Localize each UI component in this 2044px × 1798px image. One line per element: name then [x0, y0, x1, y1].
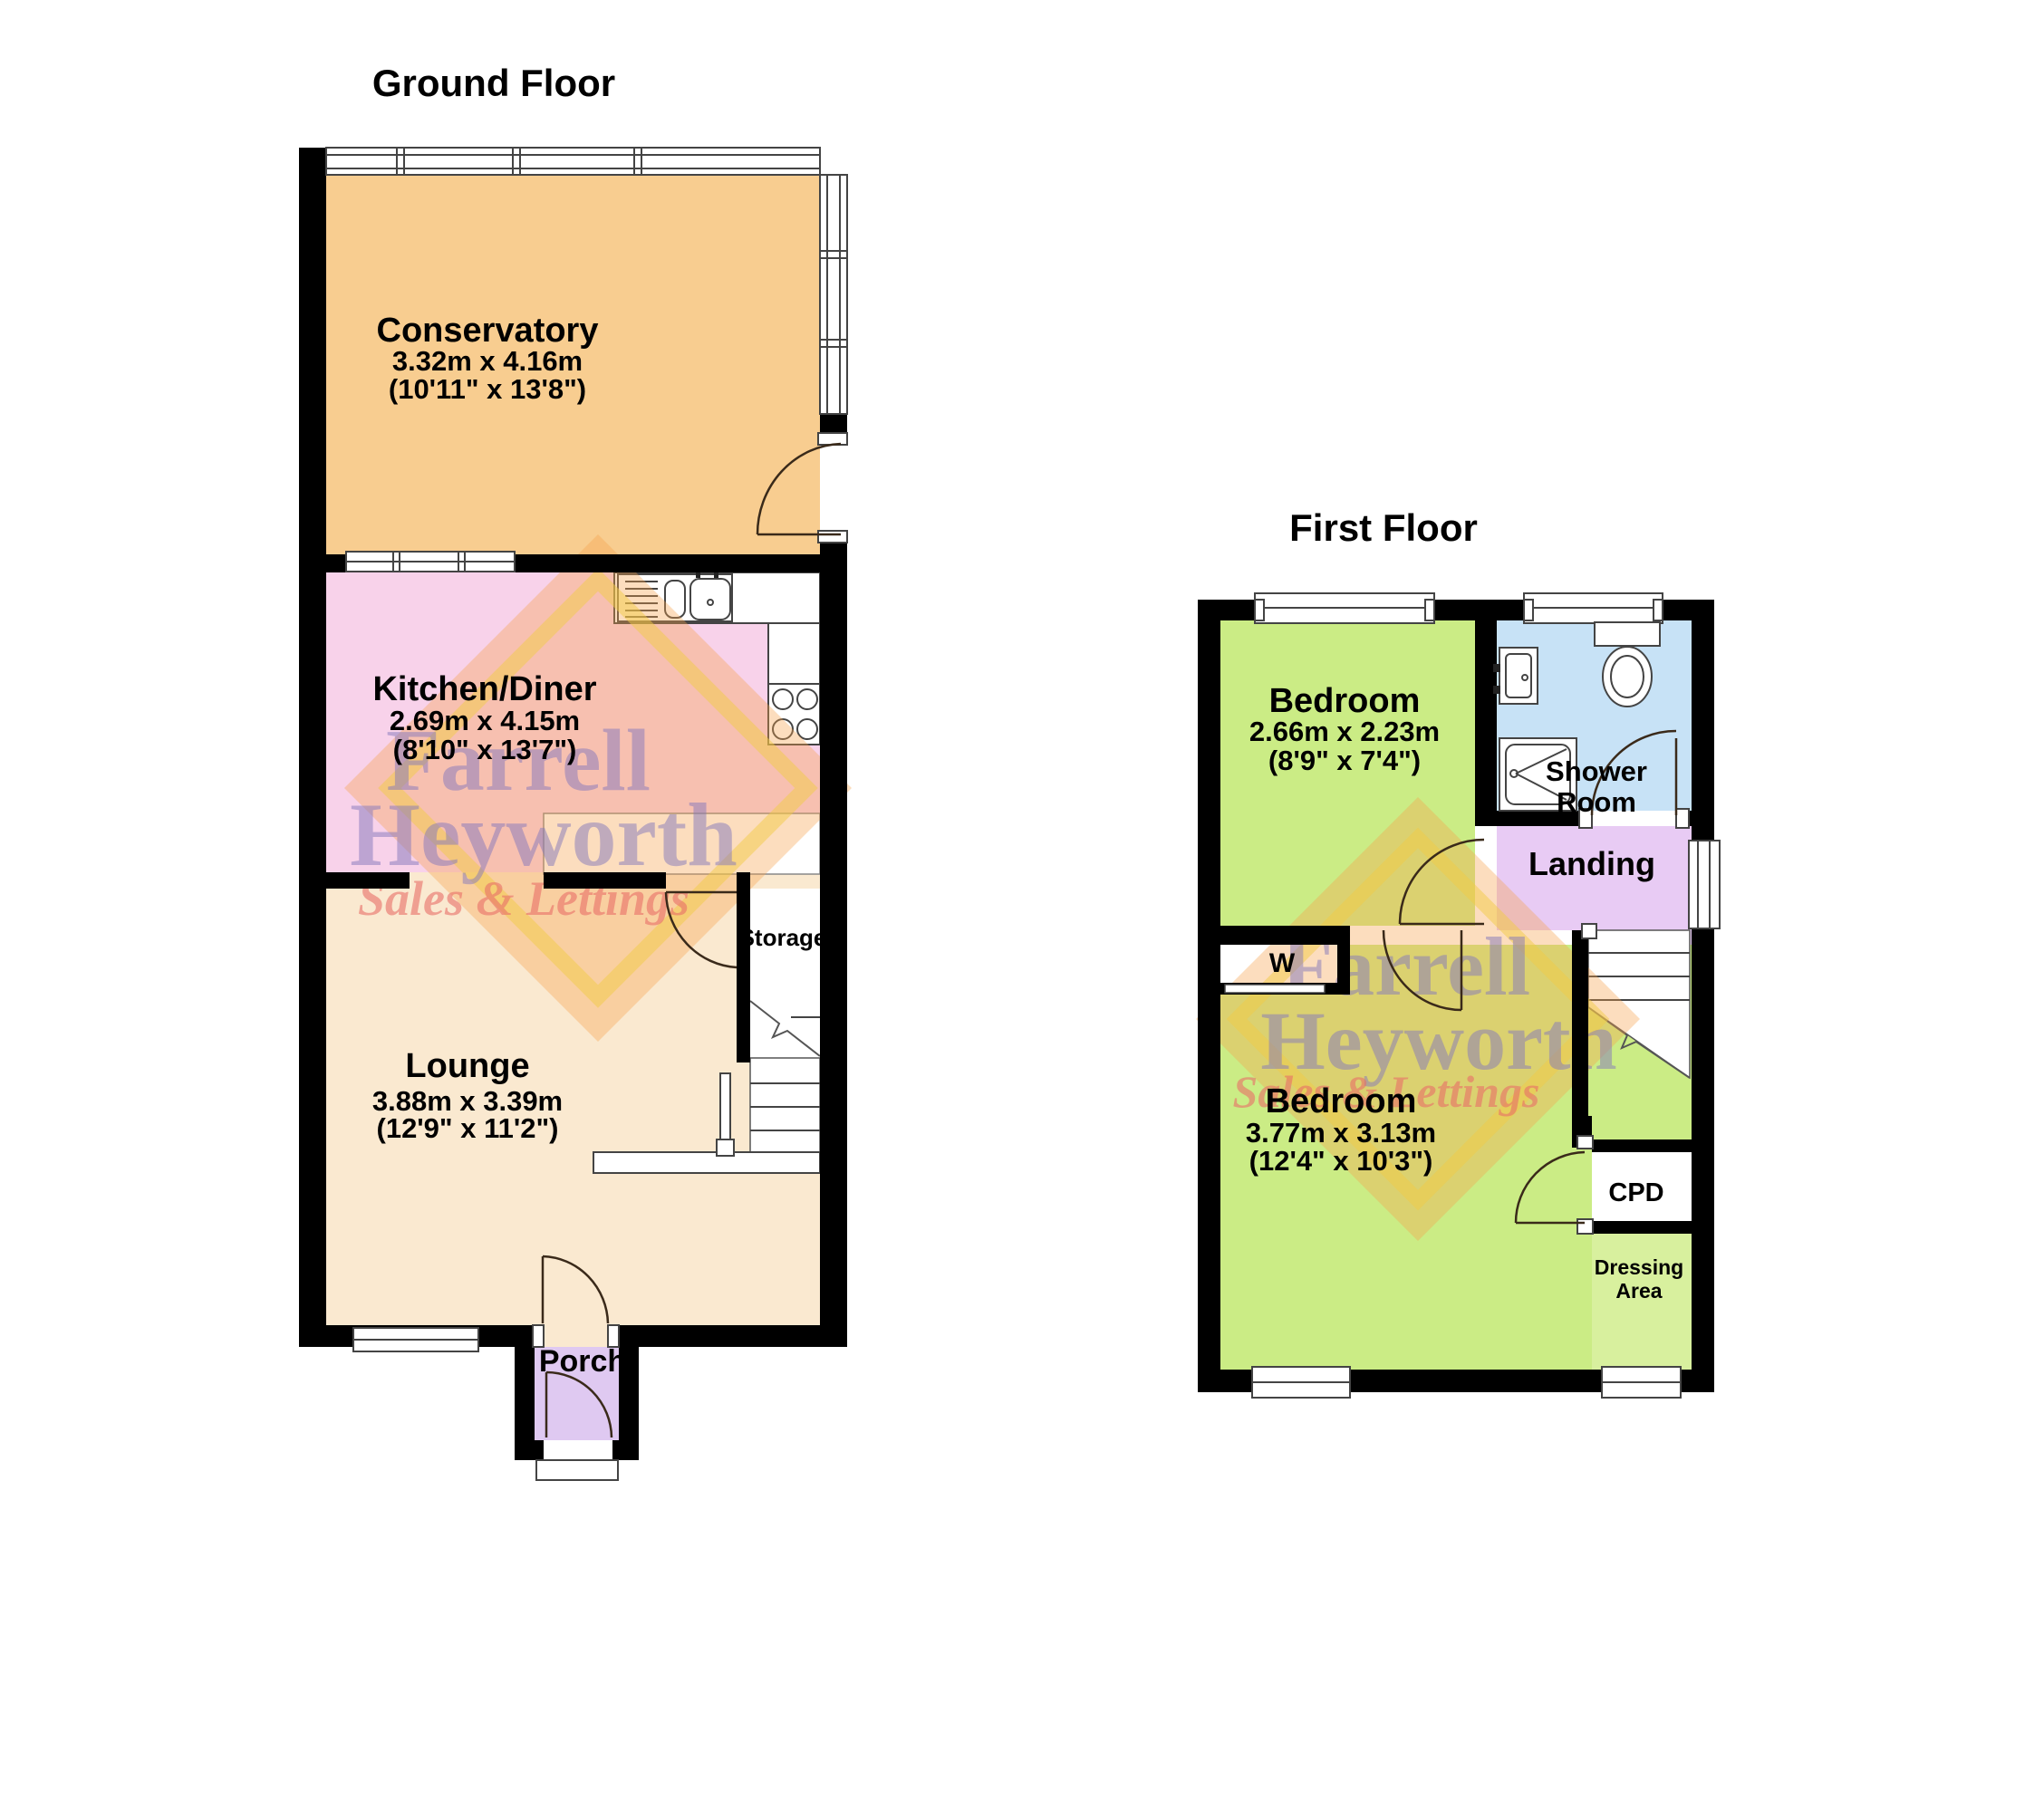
conservatory-side-window	[820, 175, 847, 414]
storage-label: Storage	[739, 924, 827, 951]
kitchen-dims-metric: 2.69m x 4.15m	[390, 705, 580, 736]
conservatory-dims-metric: 3.32m x 4.16m	[392, 345, 583, 377]
shower-room-label-line1: Shower	[1546, 755, 1647, 787]
cpd-label: CPD	[1608, 1178, 1663, 1207]
dressing-window	[1602, 1367, 1681, 1398]
bathroom-sink	[1493, 648, 1538, 704]
watermark-heyworth: Heyworth	[350, 784, 738, 885]
lounge-label: Lounge	[405, 1047, 529, 1085]
stairs-newel-post	[717, 1139, 734, 1156]
wardrobe-rail	[1225, 985, 1325, 993]
dressing-label-line1: Dressing	[1595, 1255, 1683, 1279]
bedroom1-window	[1255, 593, 1434, 623]
kitchen-window	[346, 552, 515, 572]
first-floor-plan: Farrell Heyworth Sales & Lettings	[1196, 506, 1720, 1398]
shower-room-label-line2: Room	[1557, 786, 1636, 818]
ground-floor-plan: Farrell Heyworth Sales & Lettings	[299, 62, 852, 1480]
kitchen-label: Kitchen/Diner	[372, 670, 596, 708]
first-floor-title: First Floor	[1289, 506, 1478, 549]
landing-window	[1689, 841, 1720, 928]
bedroom2-label: Bedroom	[1266, 1082, 1417, 1120]
stairs-handrail	[720, 1073, 730, 1143]
lounge-window	[353, 1328, 478, 1351]
conservatory-label: Conservatory	[377, 312, 599, 350]
conservatory-dims-imperial: (10'11" x 13'8")	[389, 373, 586, 405]
bedroom2-window	[1252, 1367, 1350, 1398]
kitchen-dims-imperial: (8'10" x 13'7")	[393, 734, 577, 765]
porch-label: Porch	[539, 1344, 626, 1379]
stairs-bottom-step	[593, 1152, 820, 1173]
floorplan-page: Farrell Heyworth Sales & Lettings	[0, 0, 2044, 1798]
landing-label: Landing	[1528, 845, 1655, 882]
bedroom1-dims-metric: 2.66m x 2.23m	[1249, 716, 1440, 747]
bedroom2-dims-metric: 3.77m x 3.13m	[1246, 1117, 1436, 1149]
bedroom1-label: Bedroom	[1269, 682, 1421, 720]
storage-closet	[750, 889, 820, 1083]
ground-floor-title: Ground Floor	[372, 62, 615, 104]
lounge-dims-imperial: (12'9" x 11'2")	[377, 1112, 559, 1144]
bedroom1-dims-imperial: (8'9" x 7'4")	[1268, 745, 1421, 776]
conservatory-top-window	[326, 148, 820, 175]
wardrobe-label: W	[1269, 948, 1296, 978]
shower-window	[1524, 593, 1663, 623]
dressing-label-line2: Area	[1615, 1279, 1662, 1303]
bedroom2-dims-imperial: (12'4" x 10'3")	[1249, 1145, 1433, 1177]
porch-step	[536, 1460, 618, 1480]
floorplan-canvas: Farrell Heyworth Sales & Lettings	[0, 0, 2044, 1798]
